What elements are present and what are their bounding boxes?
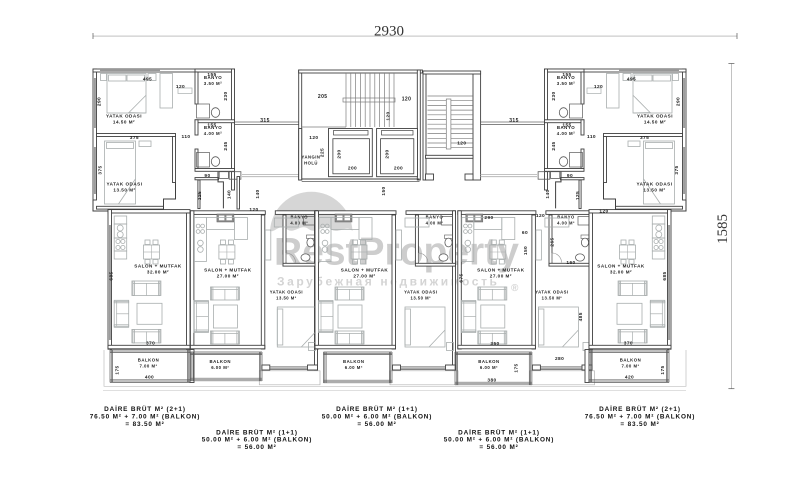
svg-text:155: 155 — [562, 123, 571, 129]
svg-text:245: 245 — [551, 141, 557, 150]
svg-text:4.00 M²: 4.00 M² — [204, 131, 222, 136]
svg-text:155: 155 — [207, 72, 216, 78]
svg-text:120: 120 — [536, 213, 545, 219]
svg-text:BALKON: BALKON — [343, 359, 364, 364]
svg-text:420: 420 — [625, 375, 634, 381]
svg-text:YATAK ODASI: YATAK ODASI — [106, 181, 142, 186]
svg-text:SALON + MUTFAK: SALON + MUTFAK — [341, 267, 389, 272]
svg-text:4.00 M²: 4.00 M² — [290, 220, 308, 225]
svg-text:YATAK ODASI: YATAK ODASI — [636, 181, 672, 186]
svg-text:13.50 M²: 13.50 M² — [410, 295, 431, 300]
svg-text:SALON + MUTFAK: SALON + MUTFAK — [597, 263, 645, 268]
svg-text:YATAK ODASI: YATAK ODASI — [404, 290, 437, 295]
svg-text:120: 120 — [402, 96, 412, 102]
svg-text:230: 230 — [223, 91, 229, 100]
svg-text:200: 200 — [394, 166, 403, 172]
svg-text:315: 315 — [260, 118, 270, 124]
svg-text:90: 90 — [204, 173, 210, 179]
svg-text:13.50 M²: 13.50 M² — [113, 188, 135, 193]
svg-text:120: 120 — [176, 84, 185, 90]
svg-text:BANYO: BANYO — [290, 215, 308, 220]
svg-text:110: 110 — [182, 134, 191, 140]
svg-text:27.00 M²: 27.00 M² — [490, 274, 512, 279]
svg-text:375: 375 — [674, 165, 680, 174]
svg-text:120: 120 — [249, 207, 258, 213]
svg-text:140: 140 — [255, 189, 261, 198]
svg-text:350: 350 — [490, 341, 499, 347]
svg-text:495: 495 — [627, 77, 636, 83]
svg-text:SALON + MUTFAK: SALON + MUTFAK — [477, 267, 525, 272]
svg-text:110: 110 — [587, 134, 596, 140]
svg-text:50.00 M² + 6.00 M² (BALKON): 50.00 M² + 6.00 M² (BALKON) — [444, 437, 554, 444]
svg-text:32.00 M²: 32.00 M² — [610, 270, 632, 275]
svg-text:4.00 M²: 4.00 M² — [557, 131, 575, 136]
svg-text:485: 485 — [578, 312, 584, 321]
svg-text:200: 200 — [337, 149, 343, 158]
svg-text:76.50 M² + 7.00 M² (BALKON): 76.50 M² + 7.00 M² (BALKON) — [585, 413, 695, 420]
svg-text:290: 290 — [676, 97, 682, 106]
svg-text:90: 90 — [567, 173, 573, 179]
svg-text:DAİRE BRÜT M² (2+1): DAİRE BRÜT M² (2+1) — [104, 404, 186, 413]
svg-text:225: 225 — [320, 148, 326, 157]
svg-text:150: 150 — [381, 186, 387, 195]
svg-text:150: 150 — [523, 246, 529, 255]
svg-text:140: 140 — [226, 190, 232, 199]
svg-text:245: 245 — [223, 141, 229, 150]
svg-text:= 56.00 M²: = 56.00 M² — [237, 444, 276, 451]
svg-text:BANYO: BANYO — [557, 215, 575, 220]
svg-text:13.50 M²: 13.50 M² — [542, 295, 563, 300]
svg-text:370: 370 — [624, 341, 633, 347]
svg-text:400: 400 — [145, 375, 154, 381]
svg-text:160: 160 — [566, 260, 575, 266]
svg-text:27.00 M²: 27.00 M² — [217, 274, 239, 279]
svg-text:4.00 M²: 4.00 M² — [557, 220, 575, 225]
svg-text:6.00 M²: 6.00 M² — [480, 365, 498, 370]
svg-text:HOLÜ: HOLÜ — [304, 160, 318, 165]
svg-text:32.00 M²: 32.00 M² — [147, 270, 169, 275]
svg-text:4.00 M²: 4.00 M² — [426, 220, 444, 225]
svg-text:120: 120 — [457, 141, 466, 147]
svg-text:155: 155 — [562, 72, 571, 78]
svg-text:= 83.50 M²: = 83.50 M² — [125, 421, 164, 428]
svg-text:125: 125 — [197, 191, 203, 200]
svg-text:120: 120 — [599, 209, 608, 215]
svg-text:DAİRE BRÜT M² (1+1): DAİRE BRÜT M² (1+1) — [458, 427, 540, 436]
svg-text:675: 675 — [459, 273, 465, 282]
svg-text:200: 200 — [385, 149, 391, 158]
svg-text:50.00 M² + 6.00 M² (BALKON): 50.00 M² + 6.00 M² (BALKON) — [202, 437, 312, 444]
svg-text:YATAK ODASI: YATAK ODASI — [637, 113, 673, 118]
svg-text:1585: 1585 — [715, 214, 731, 244]
svg-text:7.00 M²: 7.00 M² — [139, 363, 157, 368]
svg-text:3.50 M²: 3.50 M² — [557, 81, 575, 86]
svg-text:= 56.00 M²: = 56.00 M² — [357, 421, 396, 428]
svg-text:290: 290 — [484, 215, 493, 221]
svg-text:205: 205 — [318, 94, 328, 100]
svg-text:375: 375 — [98, 165, 104, 174]
svg-text:76.50 M² + 7.00 M² (BALKON): 76.50 M² + 7.00 M² (BALKON) — [90, 413, 200, 420]
svg-text:®: ® — [511, 283, 519, 294]
svg-text:60: 60 — [522, 230, 528, 236]
svg-text:155: 155 — [207, 123, 216, 129]
svg-text:13.50 M²: 13.50 M² — [276, 295, 297, 300]
svg-text:BALKON: BALKON — [478, 359, 499, 364]
svg-text:DAİRE BRÜT M² (1+1): DAİRE BRÜT M² (1+1) — [336, 404, 418, 413]
svg-text:BALKON: BALKON — [138, 358, 159, 363]
svg-text:BANYO: BANYO — [426, 215, 444, 220]
svg-text:Зарубежная недвижимость: Зарубежная недвижимость — [277, 275, 500, 289]
svg-text:14.50 M²: 14.50 M² — [644, 120, 666, 125]
svg-text:685: 685 — [109, 271, 115, 280]
svg-text:YATAK ODASI: YATAK ODASI — [270, 290, 303, 295]
svg-text:230: 230 — [551, 91, 557, 100]
svg-text:175: 175 — [660, 365, 666, 374]
svg-text:120: 120 — [594, 84, 603, 90]
svg-text:200: 200 — [348, 166, 357, 172]
svg-text:280: 280 — [555, 356, 564, 362]
svg-text:14.50 M²: 14.50 M² — [113, 120, 135, 125]
svg-text:175: 175 — [115, 365, 121, 374]
svg-text:= 83.50 M²: = 83.50 M² — [620, 421, 659, 428]
svg-text:DAİRE BRÜT M² (1+1): DAİRE BRÜT M² (1+1) — [216, 427, 298, 436]
svg-text:= 56.00 M²: = 56.00 M² — [479, 444, 518, 451]
svg-text:YATAK ODASI: YATAK ODASI — [106, 113, 142, 118]
svg-text:BALKON: BALKON — [620, 358, 641, 363]
svg-text:27.00 M²: 27.00 M² — [353, 274, 375, 279]
svg-text:6.00 M²: 6.00 M² — [345, 365, 363, 370]
svg-text:120: 120 — [309, 135, 318, 141]
svg-text:495: 495 — [143, 77, 152, 83]
svg-text:SALON + MUTFAK: SALON + MUTFAK — [134, 263, 182, 268]
svg-text:BALKON: BALKON — [210, 359, 231, 364]
svg-text:290: 290 — [97, 97, 103, 106]
svg-text:140: 140 — [545, 189, 551, 198]
svg-text:375: 375 — [130, 135, 139, 141]
svg-text:265: 265 — [550, 237, 556, 246]
svg-text:50.00 M² + 6.00 M² (BALKON): 50.00 M² + 6.00 M² (BALKON) — [322, 413, 432, 420]
svg-text:YATAK ODASI: YATAK ODASI — [535, 290, 568, 295]
svg-text:6.00 M²: 6.00 M² — [211, 365, 229, 370]
svg-text:315: 315 — [509, 118, 519, 124]
svg-text:120: 120 — [385, 111, 391, 120]
svg-text:DAİRE BRÜT M² (2+1): DAİRE BRÜT M² (2+1) — [599, 404, 681, 413]
svg-text:370: 370 — [146, 341, 155, 347]
svg-text:175: 175 — [514, 363, 520, 372]
svg-text:375: 375 — [640, 135, 649, 141]
svg-text:SALON + MUTFAK: SALON + MUTFAK — [204, 267, 252, 272]
svg-text:380: 380 — [487, 378, 496, 384]
svg-text:3.50 M²: 3.50 M² — [204, 81, 222, 86]
svg-text:2930: 2930 — [374, 23, 404, 39]
svg-text:125: 125 — [575, 191, 581, 200]
svg-text:YANGIN: YANGIN — [302, 155, 321, 160]
svg-text:13.50 M²: 13.50 M² — [643, 188, 665, 193]
svg-text:7.00 M²: 7.00 M² — [621, 363, 639, 368]
svg-text:685: 685 — [662, 271, 668, 280]
